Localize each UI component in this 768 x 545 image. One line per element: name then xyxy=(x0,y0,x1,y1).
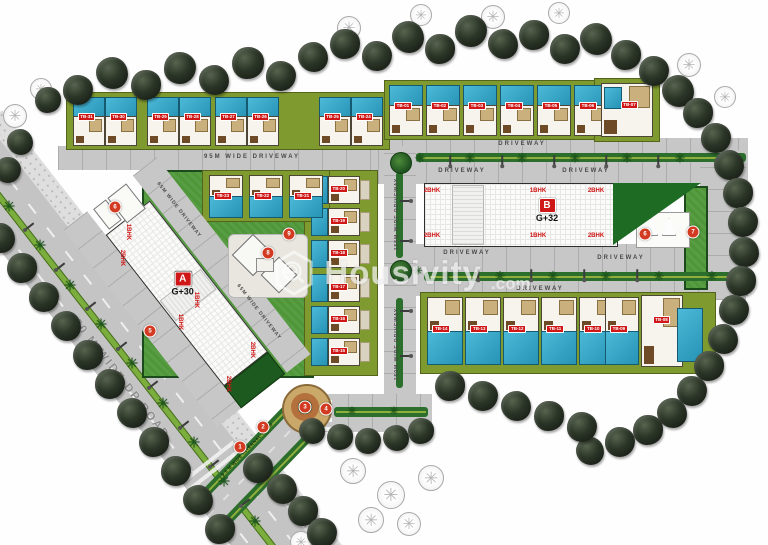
villa-roof-block xyxy=(483,300,498,315)
map-label: 1BHK xyxy=(193,292,199,308)
palm-tree-icon: ✳ xyxy=(64,279,77,294)
map-label: DRIVEWAY xyxy=(498,141,545,147)
tree xyxy=(298,42,328,72)
villa-roof-block xyxy=(306,178,320,188)
map-label: DRIVEWAY xyxy=(443,250,490,256)
villa-pool xyxy=(311,274,328,302)
tree xyxy=(117,398,147,428)
tree xyxy=(205,514,235,544)
street-lamp-icon xyxy=(554,155,556,166)
villa-unit: TB-03 xyxy=(462,84,496,136)
villa-unit: TB-09 xyxy=(604,296,638,366)
tree xyxy=(139,427,169,457)
tree xyxy=(232,47,264,79)
palm-tree-icon: ✳ xyxy=(707,270,718,283)
palm-tree-icon: ✳ xyxy=(347,407,356,418)
villa-unit-badge: TB-22 xyxy=(254,192,272,200)
villa-unit: TB-23 xyxy=(208,174,242,218)
villa-pool xyxy=(311,306,328,334)
tree xyxy=(519,20,549,50)
villa-roof-block xyxy=(644,346,654,364)
tree xyxy=(96,57,128,89)
villa-unit: TB-11 xyxy=(540,296,576,366)
villa-unit-badge: TB-18 xyxy=(330,249,348,257)
tree xyxy=(723,178,753,208)
villa-roof-block xyxy=(331,258,339,265)
building-b-badge: B xyxy=(539,198,556,213)
villa-unit-badge: TB-26 xyxy=(252,113,270,121)
building-b-floors: G+32 xyxy=(536,213,558,223)
villa-roof-block xyxy=(466,125,474,133)
street-lamp-icon xyxy=(400,240,411,242)
map-label: 2BHK xyxy=(119,250,125,266)
villa-unit-badge: TB-13 xyxy=(470,325,488,333)
villa-roof-block xyxy=(331,356,339,363)
villa-unit-badge: TB-03 xyxy=(468,102,486,110)
villa-unit-badge: TB-05 xyxy=(542,102,560,110)
villa-roof-block xyxy=(521,300,536,315)
villa-roof-block xyxy=(622,300,636,315)
map-label: 95M WIDE DRIVEWAY xyxy=(204,154,300,160)
villa-unit-badge: TB-07 xyxy=(621,101,639,109)
map-label: 1BHK xyxy=(177,314,183,330)
villa-roof-block xyxy=(559,300,574,315)
villa-unit: TB-16 xyxy=(308,304,370,334)
tree xyxy=(714,150,744,180)
villa-roof-block xyxy=(218,136,226,143)
tree-outline-icon: ✳ xyxy=(3,104,27,128)
villa-unit: TB-24 xyxy=(350,96,382,146)
palm-tree-icon: ✳ xyxy=(654,270,665,283)
map-label: 2BHK xyxy=(424,188,440,194)
amenity-marker: 6 xyxy=(639,228,652,241)
tree xyxy=(633,415,663,445)
tree-outline-icon: ✳ xyxy=(418,465,444,491)
tree xyxy=(408,418,434,444)
tree xyxy=(307,518,337,545)
villa-roof-block xyxy=(266,178,280,188)
tree xyxy=(611,40,641,70)
villa-unit-badge: TB-29 xyxy=(152,113,170,121)
amenity-marker: 1 xyxy=(234,441,247,454)
palm-tree-icon: ✳ xyxy=(495,270,506,283)
villa-unit-badge: TB-30 xyxy=(110,113,128,121)
tree xyxy=(425,34,455,64)
street-lamp-icon xyxy=(450,155,452,166)
tree xyxy=(488,29,518,59)
palm-tree-icon: ✳ xyxy=(95,318,108,333)
villa-roof-block xyxy=(331,292,339,299)
building-b-badge-group: B G+32 xyxy=(530,198,564,223)
map-label: 2BHK xyxy=(249,342,255,358)
villa-roof-block xyxy=(150,136,158,143)
palm-tree-icon: ✳ xyxy=(622,152,633,165)
tree xyxy=(73,340,103,370)
villa-unit: TB-28 xyxy=(178,96,210,146)
palm-tree-icon: ✳ xyxy=(34,239,47,254)
street-lamp-icon xyxy=(502,155,504,166)
tree xyxy=(243,453,273,483)
villa-pool xyxy=(311,240,328,268)
site-plan: 30 M WIDE DP ROAD 9.5 M WIDE INTERNAL RO… xyxy=(0,0,768,545)
tree xyxy=(726,266,756,296)
map-label: 1BHK xyxy=(125,224,131,240)
palm-tree-icon: ✳ xyxy=(249,515,262,530)
palm-tree-icon: ✳ xyxy=(389,407,398,418)
tree xyxy=(183,485,213,515)
tree xyxy=(701,123,731,153)
villa-roof-block xyxy=(445,300,460,315)
building-a-floors: G+30 xyxy=(172,286,194,296)
villa-unit-badge: TB-19 xyxy=(330,217,348,225)
villa-unit-badge: TB-15 xyxy=(330,347,348,355)
villa-unit: TB-13 xyxy=(464,296,500,366)
palm-tree-icon: ✳ xyxy=(675,152,686,165)
palm-tree-icon: ✳ xyxy=(3,200,16,215)
palm-tree-icon: ✳ xyxy=(442,270,453,283)
palm-tree-icon: ✳ xyxy=(570,152,581,165)
map-label: 150M WIDE DRIVEWAY xyxy=(394,308,400,381)
villa-unit: TB-27 xyxy=(214,96,246,146)
villa-unit-badge: TB-21 xyxy=(294,192,312,200)
villa-unit: TB-01 xyxy=(388,84,422,136)
villa-porch xyxy=(360,310,370,330)
villa-unit-badge: TB-06 xyxy=(579,102,597,110)
villa-pool xyxy=(465,331,501,365)
street-lamp-icon xyxy=(606,155,608,166)
tree xyxy=(299,418,325,444)
villa-roof-block xyxy=(331,324,339,331)
villa-unit: TB-26 xyxy=(246,96,278,146)
tree xyxy=(729,237,759,267)
villa-unit: TB-08 xyxy=(640,294,704,366)
villa-roof-block xyxy=(429,125,437,133)
palm-tree-icon: ✳ xyxy=(126,357,139,372)
amenity-marker: 4 xyxy=(320,403,333,416)
map-label: 2BHK xyxy=(588,233,604,239)
villa-unit-badge: TB-20 xyxy=(330,185,348,193)
villa-unit-badge: TB-11 xyxy=(546,325,563,333)
tree-outline-icon: ✳ xyxy=(397,512,421,536)
map-label: DRIVEWAY xyxy=(562,168,609,174)
tree xyxy=(330,29,360,59)
villa-unit-badge: TB-16 xyxy=(330,315,348,323)
villa-unit: TB-25 xyxy=(318,96,350,146)
map-label: 2BHK xyxy=(588,188,604,194)
villa-roof-block xyxy=(322,136,330,143)
villa-unit: TB-29 xyxy=(146,96,178,146)
villa-unit-badge: TB-28 xyxy=(184,113,202,121)
tree xyxy=(131,70,161,100)
building-a-badge: A xyxy=(174,271,191,286)
street-lamp-icon xyxy=(584,269,586,280)
villa-porch xyxy=(360,180,370,200)
villa-unit-badge: TB-09 xyxy=(610,325,628,333)
villa-roof-block xyxy=(503,125,511,133)
palm-tree-icon: ✳ xyxy=(218,475,231,490)
tree-outline-icon: ✳ xyxy=(548,2,570,24)
villa-porch xyxy=(360,342,370,362)
villa-unit-badge: TB-08 xyxy=(653,316,671,324)
villa-unit-badge: TB-23 xyxy=(214,192,232,200)
villa-porch xyxy=(360,212,370,232)
clubhouse-connector xyxy=(256,258,274,272)
map-label: DRIVEWAY xyxy=(438,168,485,174)
street-lamp-icon xyxy=(478,269,480,280)
street-lamp-icon xyxy=(400,355,411,357)
palm-tree-icon: ✳ xyxy=(465,152,476,165)
tree xyxy=(567,412,597,442)
tree xyxy=(7,129,33,155)
palm-tree-icon: ✳ xyxy=(157,397,170,412)
villa-roof-block xyxy=(331,226,339,233)
tree xyxy=(35,87,61,113)
villa-pool xyxy=(311,338,328,366)
amenity-marker: 9 xyxy=(283,228,296,241)
tree xyxy=(161,456,191,486)
tree xyxy=(501,391,531,421)
villa-unit: TB-07 xyxy=(600,82,652,136)
amenity-marker: 7 xyxy=(687,226,700,239)
villa-unit: TB-21 xyxy=(288,174,322,218)
amenity-marker: 6 xyxy=(109,201,122,214)
tree xyxy=(728,207,758,237)
map-label: 1BHK xyxy=(530,233,546,239)
street-lamp-icon xyxy=(400,310,411,312)
villa-roof-block xyxy=(76,136,84,143)
villa-unit-badge: TB-25 xyxy=(324,113,342,121)
building-b-core xyxy=(452,185,484,245)
tree-outline-icon: ✳ xyxy=(377,481,405,509)
palm-tree-icon: ✳ xyxy=(413,267,422,278)
villa-porch xyxy=(360,244,370,264)
villa-unit: TB-02 xyxy=(425,84,459,136)
villa-roof-block xyxy=(250,136,258,143)
villa-unit-badge: TB-14 xyxy=(432,325,450,333)
villa-unit: TB-05 xyxy=(536,84,570,136)
villa-porch xyxy=(360,278,370,298)
map-label: 2BHK xyxy=(424,233,440,239)
tree xyxy=(455,15,487,47)
villa-pool xyxy=(604,87,622,109)
tree xyxy=(29,282,59,312)
tree xyxy=(468,381,498,411)
map-label: DRIVEWAY xyxy=(516,286,563,292)
amenity-marker: 2 xyxy=(257,421,270,434)
map-label: 2BHK xyxy=(225,376,231,392)
tree xyxy=(51,311,81,341)
tree-outline-icon: ✳ xyxy=(677,53,701,77)
villa-roof-block xyxy=(182,136,190,143)
villa-unit-badge: TB-01 xyxy=(394,102,412,110)
street-lamp-icon xyxy=(400,200,411,202)
tree xyxy=(392,21,424,53)
villa-unit-badge: TB-04 xyxy=(505,102,523,110)
tree xyxy=(63,75,93,105)
tree xyxy=(362,41,392,71)
palm-tree-icon: ✳ xyxy=(601,270,612,283)
villa-unit-badge: TB-12 xyxy=(508,325,526,333)
tree xyxy=(435,371,465,401)
map-label: DRIVEWAY xyxy=(597,255,644,261)
villa-unit-badge: TB-02 xyxy=(431,102,449,110)
villa-roof-block xyxy=(331,194,339,201)
tree xyxy=(550,34,580,64)
amenity-marker: 3 xyxy=(299,401,312,414)
tree xyxy=(199,65,229,95)
tree xyxy=(383,425,409,451)
tree xyxy=(708,324,738,354)
villa-unit-badge: TB-10 xyxy=(584,325,602,333)
map-label: 1BHK xyxy=(530,188,546,194)
villa-roof-block xyxy=(577,125,585,133)
villa-pool xyxy=(605,331,639,365)
map-label: 155M WIDE DRIVEWAY xyxy=(394,178,400,251)
amenity-marker: 5 xyxy=(144,325,157,338)
villa-pool xyxy=(427,331,463,365)
villa-unit-badge: TB-31 xyxy=(78,113,96,121)
tree xyxy=(605,427,635,457)
tree xyxy=(327,424,353,450)
tree xyxy=(355,428,381,454)
villa-unit: TB-22 xyxy=(248,174,282,218)
villa-roof-block xyxy=(540,125,548,133)
tree-outline-icon: ✳ xyxy=(340,458,366,484)
tree xyxy=(266,61,296,91)
palm-tree-icon: ✳ xyxy=(548,270,559,283)
villa-roof-block xyxy=(354,136,362,143)
tree xyxy=(164,52,196,84)
tree xyxy=(534,401,564,431)
villa-roof-block xyxy=(226,178,240,188)
villa-unit: TB-14 xyxy=(426,296,462,366)
villa-roof-block xyxy=(108,136,116,143)
palm-tree-icon: ✳ xyxy=(415,152,426,165)
villa-pool xyxy=(503,331,539,365)
street-lamp-icon xyxy=(658,155,660,166)
tree-outline-icon: ✳ xyxy=(714,86,736,108)
tree xyxy=(7,253,37,283)
villa-roof-block xyxy=(604,120,617,134)
tree xyxy=(580,23,612,55)
round-bush xyxy=(390,260,412,282)
villa-unit: TB-12 xyxy=(502,296,538,366)
villa-unit: TB-15 xyxy=(308,336,370,366)
villa-unit: TB-04 xyxy=(499,84,533,136)
villa-unit-badge: TB-27 xyxy=(220,113,238,121)
villa-unit: TB-18 xyxy=(308,238,370,268)
palm-tree-icon: ✳ xyxy=(517,152,528,165)
villa-unit-badge: TB-24 xyxy=(356,113,374,121)
tree xyxy=(95,369,125,399)
villa-unit: TB-30 xyxy=(104,96,136,146)
villa-roof-block xyxy=(392,125,400,133)
amenity-marker: 8 xyxy=(262,247,275,260)
tree-outline-icon: ✳ xyxy=(358,507,384,533)
villa-pool xyxy=(541,331,577,365)
street-lamp-icon xyxy=(637,269,639,280)
villa-unit-badge: TB-17 xyxy=(330,283,348,291)
round-bush xyxy=(390,152,412,174)
tree xyxy=(719,295,749,325)
street-lamp-icon xyxy=(531,269,533,280)
villa-unit: TB-17 xyxy=(308,272,370,302)
palm-tree-icon: ✳ xyxy=(188,436,201,451)
